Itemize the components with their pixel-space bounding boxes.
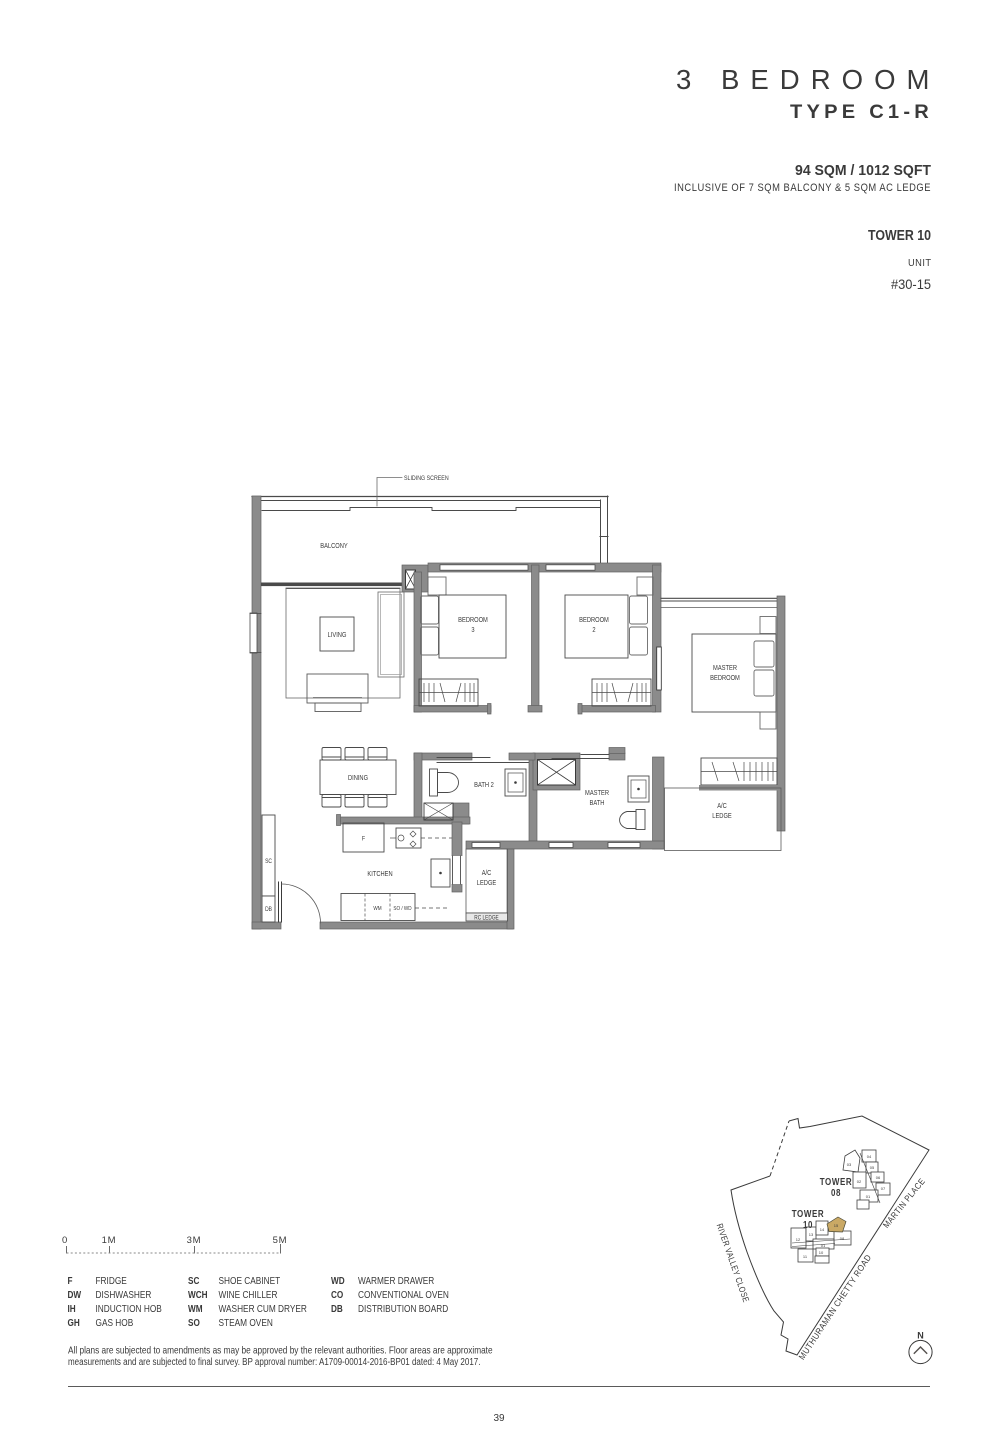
svg-text:SLIDING SCREEN: SLIDING SCREEN: [404, 474, 449, 482]
svg-text:5M: 5M: [273, 1235, 288, 1246]
svg-text:SC: SC: [188, 1275, 200, 1286]
svg-text:BEDROOM: BEDROOM: [579, 616, 609, 624]
svg-text:FRIDGE: FRIDGE: [96, 1275, 127, 1287]
svg-text:CONVENTIONAL OVEN: CONVENTIONAL OVEN: [358, 1289, 449, 1301]
svg-text:DINING: DINING: [348, 774, 368, 782]
svg-text:SO / WD: SO / WD: [393, 906, 411, 913]
svg-text:MASTER: MASTER: [585, 789, 609, 797]
svg-text:3: 3: [471, 626, 475, 634]
svg-text:INCLUSIVE OF 7 SQM BALCONY & 5: INCLUSIVE OF 7 SQM BALCONY & 5 SQM AC LE…: [674, 182, 931, 194]
svg-text:WARMER DRAWER: WARMER DRAWER: [358, 1275, 434, 1287]
svg-text:A/C: A/C: [717, 802, 727, 810]
svg-text:CO: CO: [331, 1289, 343, 1300]
svg-text:01: 01: [821, 1243, 826, 1248]
svg-text:F: F: [362, 836, 366, 843]
svg-text:KITCHEN: KITCHEN: [367, 870, 392, 878]
svg-text:03: 03: [847, 1162, 852, 1167]
svg-text:TYPE C1-R: TYPE C1-R: [790, 102, 933, 123]
svg-text:14: 14: [820, 1227, 825, 1232]
svg-text:BEDROOM: BEDROOM: [710, 674, 740, 682]
svg-text:WM: WM: [373, 906, 381, 913]
svg-text:01: 01: [866, 1194, 871, 1199]
svg-text:2: 2: [592, 626, 596, 634]
svg-text:DISTRIBUTION BOARD: DISTRIBUTION BOARD: [358, 1303, 448, 1315]
svg-text:TOWER: TOWER: [820, 1176, 853, 1187]
svg-text:TOWER 10: TOWER 10: [868, 228, 931, 244]
svg-text:IH: IH: [68, 1303, 76, 1314]
svg-text:RC LEDGE: RC LEDGE: [474, 915, 499, 922]
svg-text:10: 10: [803, 1219, 813, 1230]
svg-text:GH: GH: [68, 1317, 80, 1328]
svg-text:DISHWASHER: DISHWASHER: [96, 1289, 152, 1301]
svg-text:WCH: WCH: [188, 1289, 208, 1300]
svg-text:F: F: [68, 1275, 73, 1286]
svg-text:UNIT: UNIT: [908, 257, 932, 269]
svg-text:SC: SC: [265, 859, 272, 866]
svg-text:WD: WD: [331, 1275, 345, 1286]
svg-text:DB: DB: [265, 907, 272, 914]
svg-text:94 SQM / 1012 SQFT: 94 SQM / 1012 SQFT: [795, 163, 931, 179]
svg-text:39: 39: [493, 1413, 505, 1424]
svg-text:LEDGE: LEDGE: [477, 879, 497, 887]
svg-text:3M: 3M: [187, 1235, 202, 1246]
svg-text:WASHER CUM DRYER: WASHER CUM DRYER: [219, 1303, 308, 1315]
svg-text:N: N: [917, 1331, 924, 1341]
svg-text:TOWER: TOWER: [792, 1208, 825, 1219]
svg-text:3 BEDROOM: 3 BEDROOM: [676, 64, 941, 95]
svg-text:BALCONY: BALCONY: [320, 542, 348, 550]
svg-text:15: 15: [834, 1223, 839, 1228]
svg-text:BEDROOM: BEDROOM: [458, 616, 488, 624]
svg-text:LIVING: LIVING: [328, 631, 347, 639]
svg-text:12: 12: [796, 1237, 801, 1242]
svg-text:WINE CHILLER: WINE CHILLER: [219, 1289, 278, 1301]
svg-text:13: 13: [809, 1232, 814, 1237]
svg-text:GAS HOB: GAS HOB: [96, 1317, 134, 1329]
svg-text:INDUCTION HOB: INDUCTION HOB: [96, 1303, 162, 1315]
svg-text:#30-15: #30-15: [891, 277, 931, 292]
svg-text:0: 0: [62, 1235, 68, 1246]
svg-text:BATH: BATH: [590, 799, 605, 807]
svg-text:MASTER: MASTER: [713, 664, 737, 672]
svg-text:SO: SO: [188, 1317, 200, 1328]
svg-text:measurements and are subjected: measurements and are subjected to final …: [68, 1356, 480, 1367]
svg-text:DW: DW: [68, 1289, 82, 1300]
svg-text:WM: WM: [188, 1303, 203, 1314]
svg-text:08: 08: [831, 1187, 841, 1198]
svg-text:02: 02: [857, 1179, 862, 1184]
svg-text:1M: 1M: [102, 1235, 117, 1246]
svg-text:DB: DB: [331, 1303, 343, 1314]
svg-text:05: 05: [870, 1165, 875, 1170]
svg-text:BATH 2: BATH 2: [474, 781, 494, 789]
svg-text:LEDGE: LEDGE: [712, 812, 732, 820]
svg-text:SHOE CABINET: SHOE CABINET: [219, 1275, 281, 1287]
svg-text:All plans are subjected to ame: All plans are subjected to amendments as…: [68, 1344, 493, 1356]
svg-text:STEAM OVEN: STEAM OVEN: [219, 1317, 273, 1329]
svg-text:A/C: A/C: [482, 869, 492, 877]
svg-text:08: 08: [840, 1236, 845, 1241]
svg-text:07: 07: [881, 1186, 886, 1191]
svg-text:06: 06: [876, 1175, 881, 1180]
svg-text:04: 04: [867, 1154, 872, 1159]
svg-text:10: 10: [819, 1250, 824, 1255]
